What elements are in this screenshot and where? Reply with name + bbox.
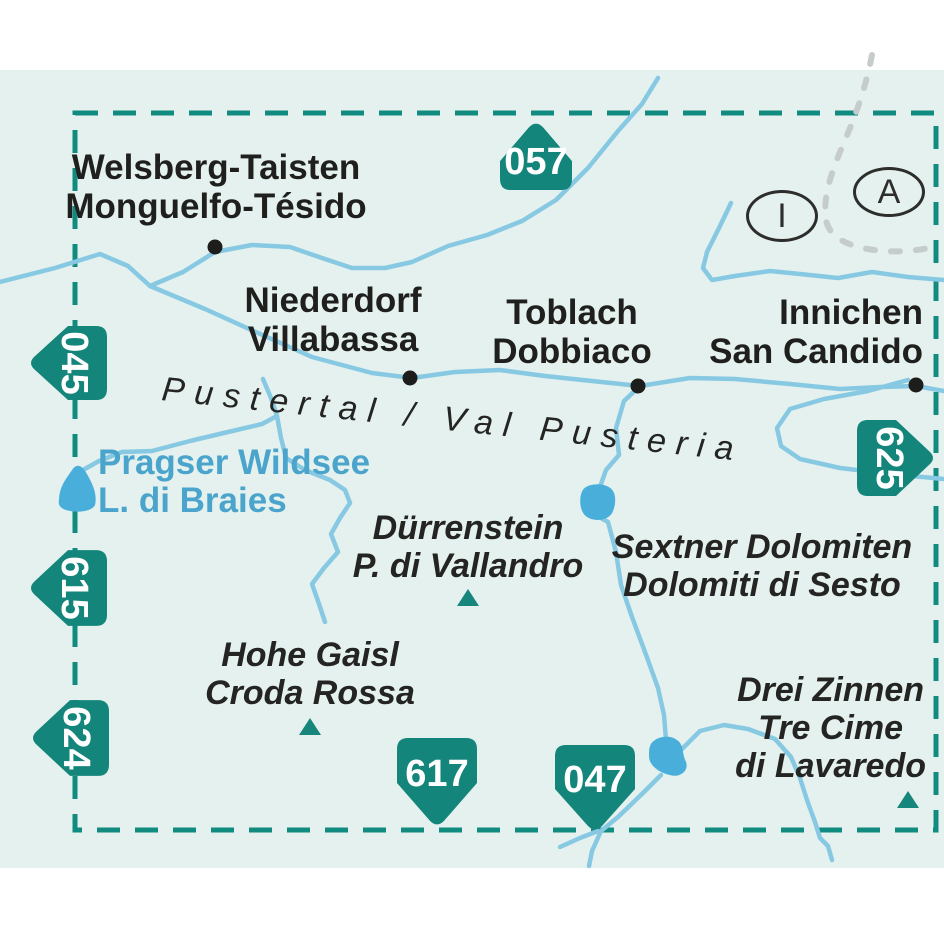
town-name-de: Toblach [492, 293, 651, 332]
town-name-it: Villabassa [245, 320, 422, 359]
town-dot-toblach [631, 379, 646, 394]
town-label-welsberg: Welsberg-Taisten Monguelfo-Tésido [65, 148, 366, 226]
river-northeast [703, 203, 944, 280]
sheet-number: 047 [554, 736, 636, 824]
map-sheet-overview: Welsberg-Taisten Monguelfo-Tésido Nieder… [0, 0, 944, 944]
town-label-innichen: Innichen San Candido [709, 293, 923, 371]
range-label-sextner-dolomiten: Sextner Dolomiten Dolomiti di Sesto [612, 528, 912, 604]
country-marker-italy: I [746, 190, 818, 242]
peak-label-drei-zinnen: Drei Zinnen Tre Cime di Lavaredo [735, 671, 926, 785]
river-bottom-left-stub [560, 831, 598, 847]
peak-label-duerrenstein: Dürrenstein P. di Vallandro [353, 509, 584, 585]
town-label-niederdorf: Niederdorf Villabassa [245, 281, 422, 359]
peak-name-it: Tre Cime [735, 709, 926, 747]
range-name-it: Dolomiti di Sesto [612, 566, 912, 604]
sheet-number: 617 [396, 729, 478, 819]
sheet-badge-624[interactable]: 624 [30, 696, 110, 780]
town-dot-niederdorf [403, 371, 418, 386]
town-name-de: Innichen [709, 293, 923, 332]
peak-name-de: Hohe Gaisl [205, 636, 415, 674]
peak-label-hohe-gaisl: Hohe Gaisl Croda Rossa [205, 636, 415, 712]
town-name-it: Monguelfo-Tésido [65, 187, 366, 226]
sheet-badge-615[interactable]: 615 [28, 546, 108, 630]
lake-toblacher-see [581, 485, 614, 519]
town-label-toblach: Toblach Dobbiaco [492, 293, 651, 371]
lake-label-pragser-wildsee: Pragser Wildsee L. di Braies [98, 444, 370, 520]
peak-name-it: Croda Rossa [205, 674, 415, 712]
town-dot-welsberg [208, 240, 223, 255]
sheet-badge-047[interactable]: 047 [554, 745, 636, 833]
peak-name-de: Dürrenstein [353, 509, 584, 547]
sheet-badge-625[interactable]: 625 [854, 418, 936, 498]
sheet-number: 624 [34, 698, 118, 778]
sheet-number: 615 [32, 548, 116, 628]
town-dot-innichen [909, 378, 924, 393]
lake-name-de: Pragser Wildsee [98, 444, 370, 482]
lake-duerrensee [650, 738, 686, 775]
peak-name-de: Drei Zinnen [735, 671, 926, 709]
peak-triangle-duerrenstein [457, 589, 479, 606]
peak-triangle-tre-cime [897, 791, 919, 808]
country-letter-a: A [878, 173, 901, 212]
peak-name-it: P. di Vallandro [353, 547, 584, 585]
sheet-number: 625 [849, 417, 929, 499]
peak-triangle-hohe-gaisl [299, 718, 321, 735]
sheet-badge-057[interactable]: 057 [492, 120, 580, 190]
town-name-it: Dobbiaco [492, 332, 651, 371]
country-marker-austria: A [853, 167, 925, 217]
town-name-it: San Candido [709, 332, 923, 371]
lake-name-it: L. di Braies [98, 482, 370, 520]
peak-name-it2: di Lavaredo [735, 747, 926, 785]
sheet-badge-617[interactable]: 617 [396, 738, 478, 828]
range-name-de: Sextner Dolomiten [612, 528, 912, 566]
town-name-de: Welsberg-Taisten [65, 148, 366, 187]
town-name-de: Niederdorf [245, 281, 422, 320]
sheet-number: 057 [492, 127, 580, 197]
sheet-badge-045[interactable]: 045 [28, 322, 108, 404]
lake-pragser-wildsee [60, 467, 95, 511]
country-border [825, 55, 937, 251]
sheet-number: 045 [33, 323, 115, 403]
country-letter-i: I [777, 197, 786, 236]
